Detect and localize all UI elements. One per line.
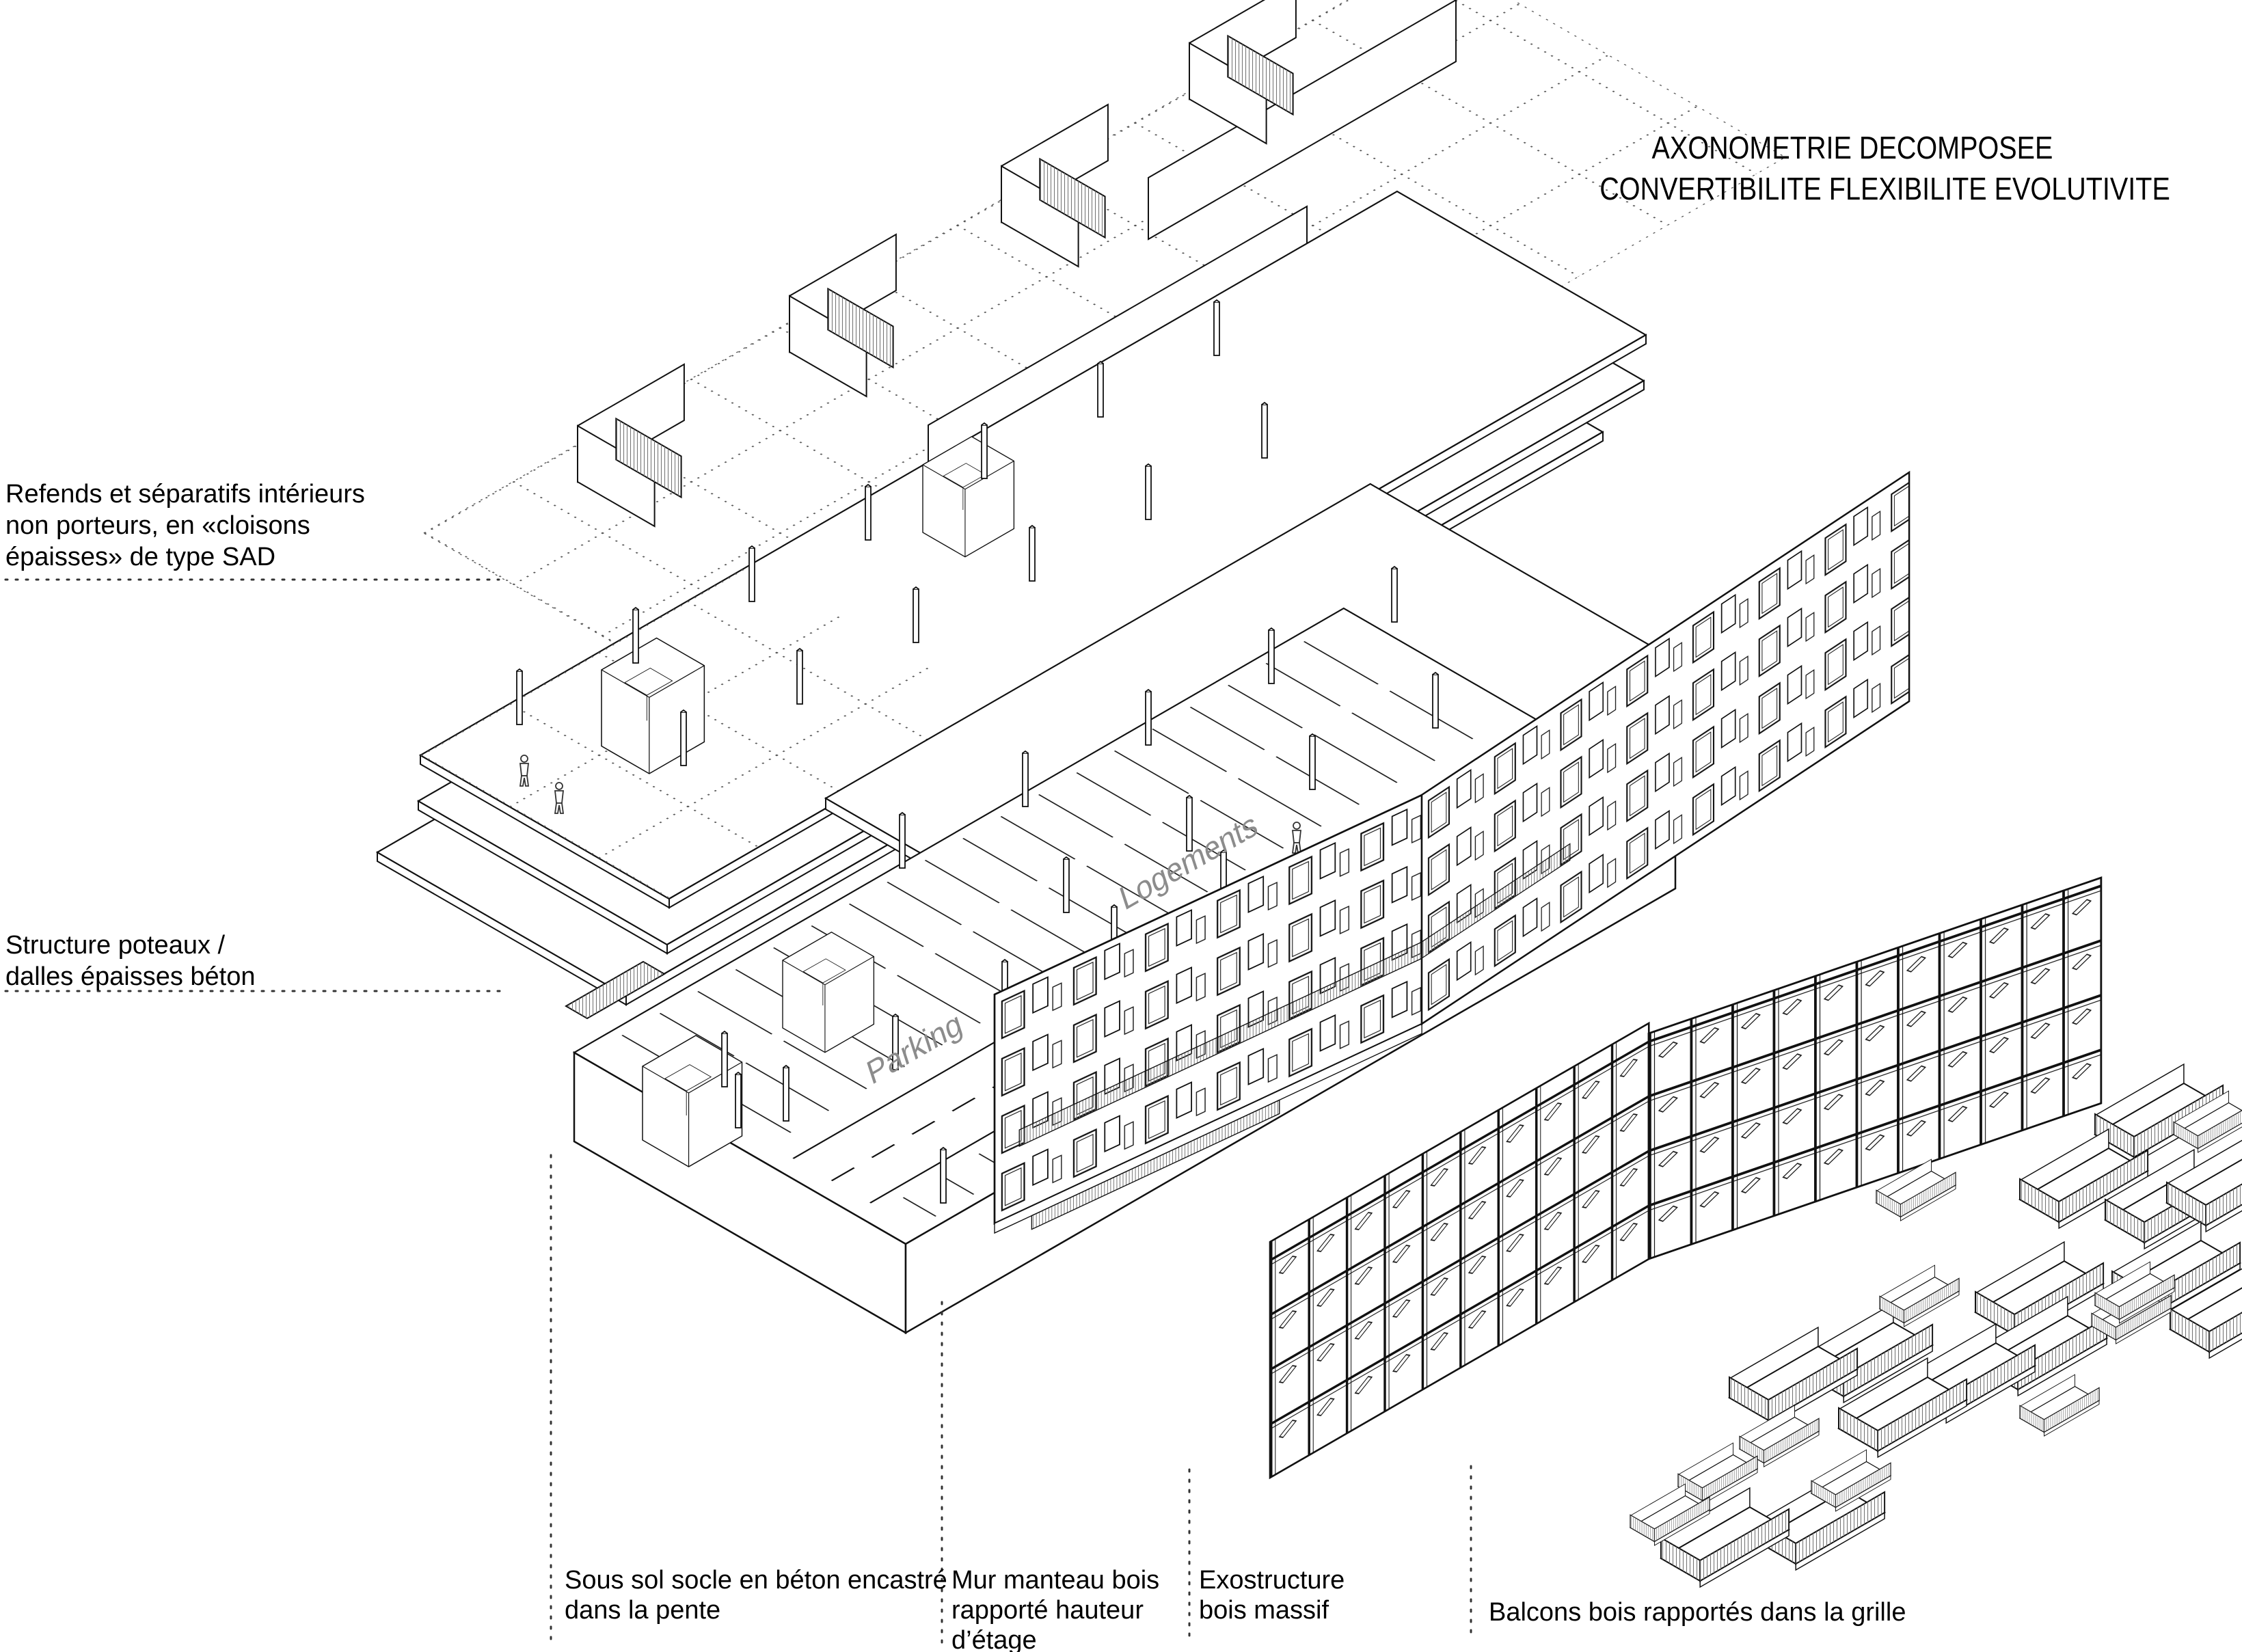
annotation-refends-line2: non porteurs, en «cloisons	[5, 510, 365, 541]
drawing-canvas	[0, 0, 2242, 1652]
annotation-structure-line2: dalles épaisses béton	[5, 961, 255, 992]
annotation-refends-line3: épaisses» de type SAD	[5, 541, 365, 573]
axonometric-exploded-diagram: AXONOMETRIE DECOMPOSEE CONVERTIBILITE FL…	[0, 0, 2242, 1652]
annotation-sous-sol-line2: dans la pente	[565, 1595, 947, 1625]
annotation-refends: Refends et séparatifs intérieurs non por…	[5, 478, 365, 573]
annotation-sous-sol-line1: Sous sol socle en béton encastré	[565, 1565, 947, 1595]
annotation-exostructure-line2: bois massif	[1199, 1595, 1345, 1625]
annotation-balcons-line1: Balcons bois rapportés dans la grille	[1489, 1597, 1906, 1628]
annotation-structure-line1: Structure poteaux /	[5, 930, 255, 961]
annotation-structure: Structure poteaux / dalles épaisses béto…	[5, 930, 255, 992]
title-block: AXONOMETRIE DECOMPOSEE CONVERTIBILITE FL…	[1599, 127, 2105, 209]
annotation-balcons: Balcons bois rapportés dans la grille	[1489, 1597, 1906, 1628]
annotation-mur-manteau-line1: Mur manteau bois	[951, 1565, 1159, 1595]
title-line-1: AXONOMETRIE DECOMPOSEE	[1599, 127, 2105, 168]
annotation-sous-sol: Sous sol socle en béton encastré dans la…	[565, 1565, 947, 1625]
annotation-mur-manteau-line3: d’étage	[951, 1625, 1159, 1652]
annotation-refends-line1: Refends et séparatifs intérieurs	[5, 478, 365, 510]
annotation-mur-manteau-line2: rapporté hauteur	[951, 1595, 1159, 1625]
annotation-exostructure-line1: Exostructure	[1199, 1565, 1345, 1595]
title-line-2: CONVERTIBILITE FLEXIBILITE EVOLUTIVITE	[1599, 168, 2105, 209]
annotation-exostructure: Exostructure bois massif	[1199, 1565, 1345, 1625]
annotation-mur-manteau: Mur manteau bois rapporté hauteur d’étag…	[951, 1565, 1159, 1652]
